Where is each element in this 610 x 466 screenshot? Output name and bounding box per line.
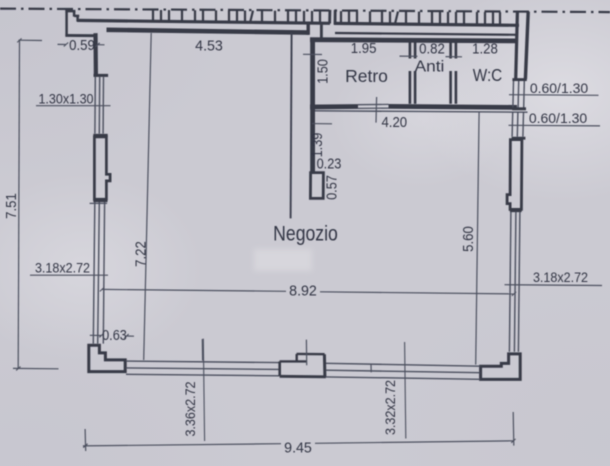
svg-text:3.18x2.72: 3.18x2.72 — [35, 260, 90, 276]
svg-text:0.57: 0.57 — [324, 175, 340, 200]
svg-text:8.92: 8.92 — [289, 283, 317, 299]
svg-text:0.60/1.30: 0.60/1.30 — [530, 80, 589, 96]
svg-text:W:C: W:C — [473, 65, 502, 85]
svg-text:7.51: 7.51 — [2, 193, 19, 219]
svg-text:1.28: 1.28 — [472, 40, 498, 57]
svg-text:0.23: 0.23 — [317, 156, 342, 172]
svg-text:3.18x2.72: 3.18x2.72 — [533, 269, 588, 285]
svg-text:3.32x2.72: 3.32x2.72 — [382, 380, 398, 435]
svg-text:5.60: 5.60 — [459, 226, 476, 252]
svg-text:0.82: 0.82 — [419, 39, 445, 56]
svg-text:0.60/1.30: 0.60/1.30 — [529, 110, 588, 126]
svg-text:9.45: 9.45 — [284, 440, 312, 456]
svg-text:1.95: 1.95 — [351, 39, 377, 56]
svg-text:7.22: 7.22 — [131, 241, 148, 267]
svg-text:1.30x1.30: 1.30x1.30 — [38, 91, 93, 107]
svg-text:0.63: 0.63 — [102, 327, 127, 343]
svg-text:4.20: 4.20 — [381, 113, 407, 130]
svg-text:4.53: 4.53 — [195, 38, 223, 54]
svg-text:1.50: 1.50 — [315, 59, 331, 84]
svg-text:Anti: Anti — [415, 57, 445, 75]
svg-text:1.39: 1.39 — [309, 133, 325, 158]
svg-text:Retro: Retro — [345, 66, 388, 86]
svg-text:3.36x2.72: 3.36x2.72 — [182, 381, 198, 436]
svg-text:Negozio: Negozio — [273, 222, 338, 246]
svg-text:0.59: 0.59 — [69, 36, 95, 53]
